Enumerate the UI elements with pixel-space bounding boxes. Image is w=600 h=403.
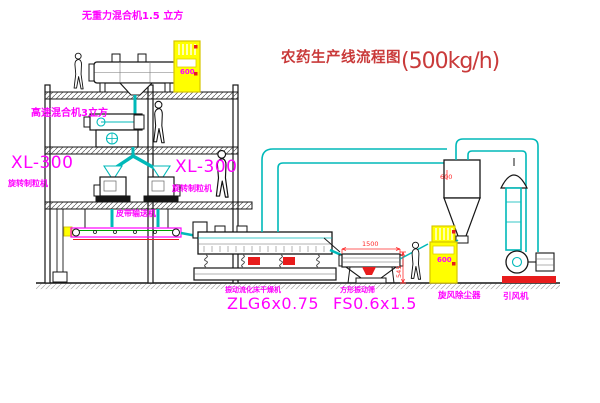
receiver-box <box>53 272 67 282</box>
label-dryer-model: ZLG6x0.75 <box>227 296 319 312</box>
exhaust-stack <box>501 158 527 250</box>
cyclone-outlet <box>456 236 468 243</box>
fan-inlet-eye <box>513 258 522 267</box>
label-high-speed-mixer: 高速混合机3立方 <box>31 109 108 119</box>
vibration-motor <box>283 257 295 265</box>
rain-cap <box>501 175 527 188</box>
elevator-1-marking: 600 <box>180 69 195 76</box>
dimension-sieve-width: 1500 <box>362 241 379 248</box>
indicator-dot <box>194 45 198 49</box>
dryer-body <box>198 232 332 254</box>
granulator-base <box>144 196 178 202</box>
ground-hatch <box>36 284 560 290</box>
label-fan: 引风机 <box>503 293 529 302</box>
granulator-1 <box>94 166 130 202</box>
indicator-dot <box>452 262 456 266</box>
pulley <box>173 229 180 236</box>
label-sieve-model: FS0.6x1.5 <box>333 296 417 312</box>
fan-motor <box>536 253 554 271</box>
elevator-2-marking: 600 <box>437 257 452 264</box>
person-figure <box>74 53 83 89</box>
label-granulator-mid-model: XL-300 <box>175 159 237 176</box>
stack-pipe <box>506 188 521 250</box>
person-figure <box>411 242 420 279</box>
floor-slab <box>45 202 252 209</box>
mixer-flange <box>89 64 94 81</box>
label-granulator-left-model: XL-300 <box>11 155 73 172</box>
granulator-motor <box>94 185 100 196</box>
person-figure <box>154 101 164 142</box>
label-belt-conveyor: 皮带输送机 <box>116 210 156 218</box>
label-sieve-name: 方形振动筛 <box>340 287 375 294</box>
dryer-stub <box>237 226 247 232</box>
granulator-funnel <box>104 166 122 177</box>
dryer-stub <box>215 226 225 232</box>
granulator-funnel <box>152 166 170 177</box>
sieve-base <box>356 278 386 283</box>
floor-slab <box>45 147 238 154</box>
label-cyclone: 旋风除尘器 <box>438 292 481 301</box>
title-capacity: (500kg/h) <box>401 49 499 74</box>
indicator-dot <box>452 230 456 234</box>
pulley <box>73 229 80 236</box>
label-granulator-left-name: 旋转制粒机 <box>8 180 48 188</box>
exhaust-duct <box>262 149 447 232</box>
mixer-leg <box>100 83 105 92</box>
label-gravity-mixer: 无重力混合机1.5 立方 <box>82 12 183 22</box>
drive-box <box>134 115 144 129</box>
bucket-elevator-2 <box>430 226 458 283</box>
mixer-inlet <box>112 54 120 62</box>
mixer-leg <box>165 83 170 92</box>
fluid-bed-dryer-machine <box>193 222 336 280</box>
granulator-base <box>96 196 130 202</box>
title-text: 农药生产线流程图 <box>281 50 401 66</box>
diagram-title: 农药生产线流程图(500kg/h) <box>281 46 499 74</box>
label-granulator-mid-name: 旋转制粒机 <box>172 185 212 193</box>
fan-base <box>502 276 556 283</box>
vibration-motor <box>248 257 260 265</box>
mixer-inlet <box>138 54 146 62</box>
dryer-springs <box>205 255 320 267</box>
dimension-duct-diameter: 600 <box>440 174 452 181</box>
conveyor-frame <box>71 228 181 237</box>
bucket-elevator-1 <box>174 41 200 92</box>
induced-draft-fan-machine <box>502 251 556 283</box>
dimension-sieve-height: 545 <box>396 266 403 278</box>
process-flow-diagram-page: 农药生产线流程图(500kg/h) 无重力混合机1.5 立方 高速混合机3立方 … <box>0 0 600 403</box>
sieve-body <box>342 254 400 267</box>
label-dryer-name: 振动流化床干燥机 <box>225 287 281 294</box>
